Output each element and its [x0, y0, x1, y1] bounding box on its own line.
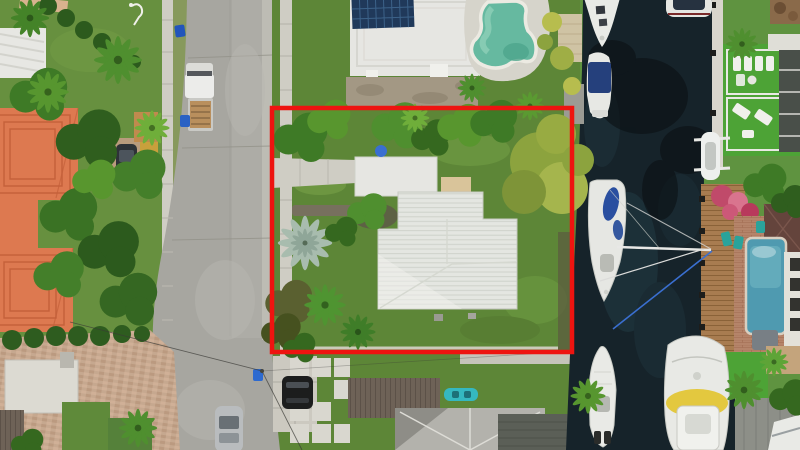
detached-garage-roof	[355, 157, 437, 196]
silver-sedan	[215, 406, 243, 450]
blue-canopy-cruiser	[587, 52, 612, 118]
small-gray-structure	[60, 352, 74, 368]
kidney-pool	[471, 1, 536, 68]
tan-shed-roof	[441, 177, 471, 193]
bottom-lawn-patch	[62, 402, 110, 450]
ac-unit	[434, 314, 443, 321]
trawler-yacht	[664, 336, 729, 450]
boat-navy-canvas-north	[666, 0, 712, 17]
lot-driveway	[272, 158, 356, 188]
aerial-photo-canvas	[0, 0, 800, 450]
solar-roof-house	[350, 0, 480, 79]
south-path	[460, 354, 580, 364]
aerial-photo	[0, 0, 800, 450]
ac-unit-2	[468, 313, 476, 319]
black-suv	[282, 376, 313, 409]
east-patio	[723, 34, 800, 156]
teal-kayak	[444, 388, 478, 401]
blue-barrel	[375, 145, 387, 157]
solar-panels	[351, 0, 414, 29]
